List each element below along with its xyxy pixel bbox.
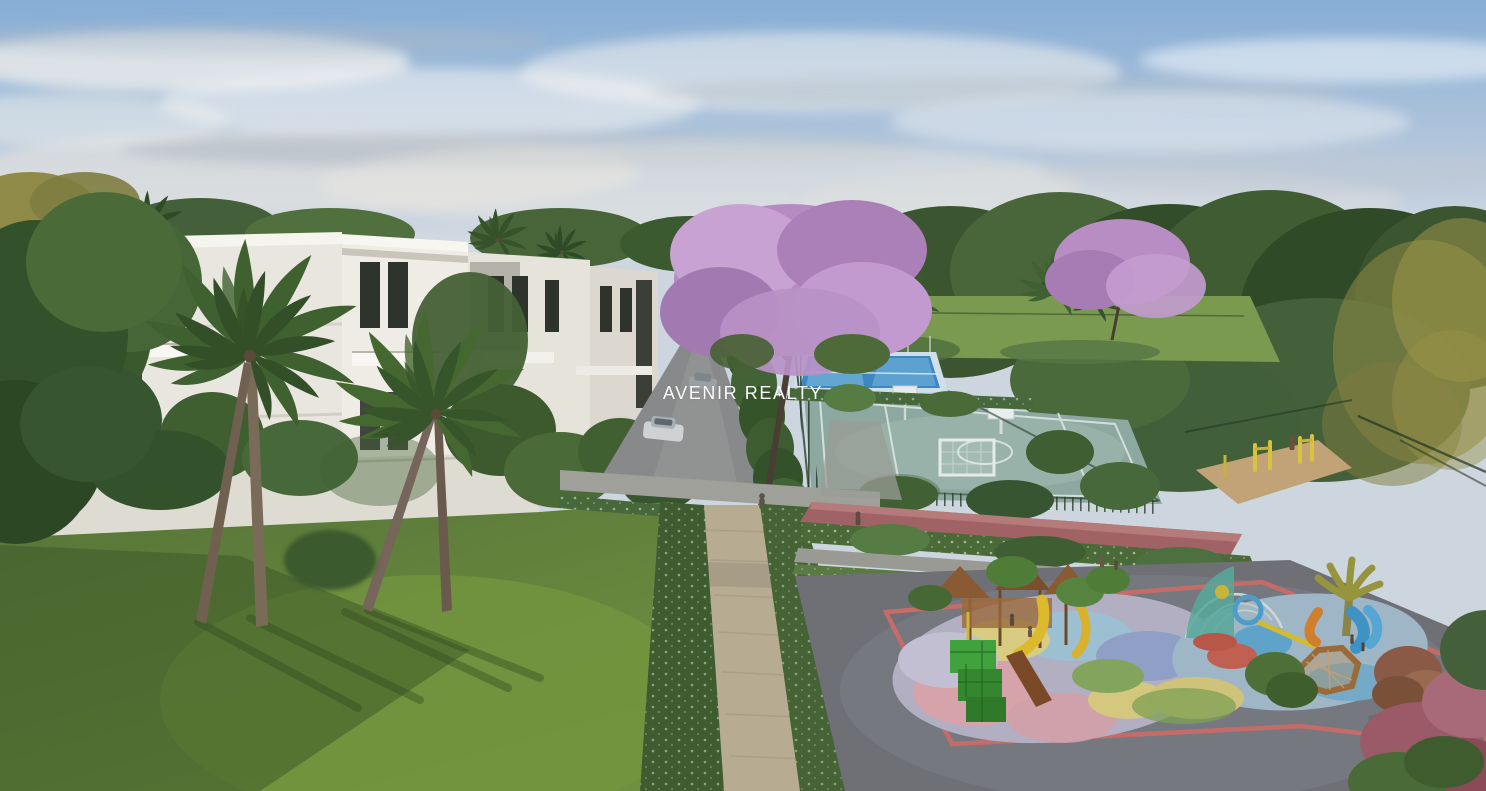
watermark: AVENIR REALTY [663,384,823,402]
person [1010,614,1014,626]
goal-frame [940,440,994,475]
render-viewport: AVENIR REALTY [0,0,1486,791]
person [1289,435,1294,450]
window [636,280,652,408]
person [1028,626,1032,637]
person [1100,556,1104,568]
person [1114,560,1118,570]
person [1361,642,1364,651]
playground [795,556,1486,791]
person [855,511,860,525]
person [1350,634,1354,644]
